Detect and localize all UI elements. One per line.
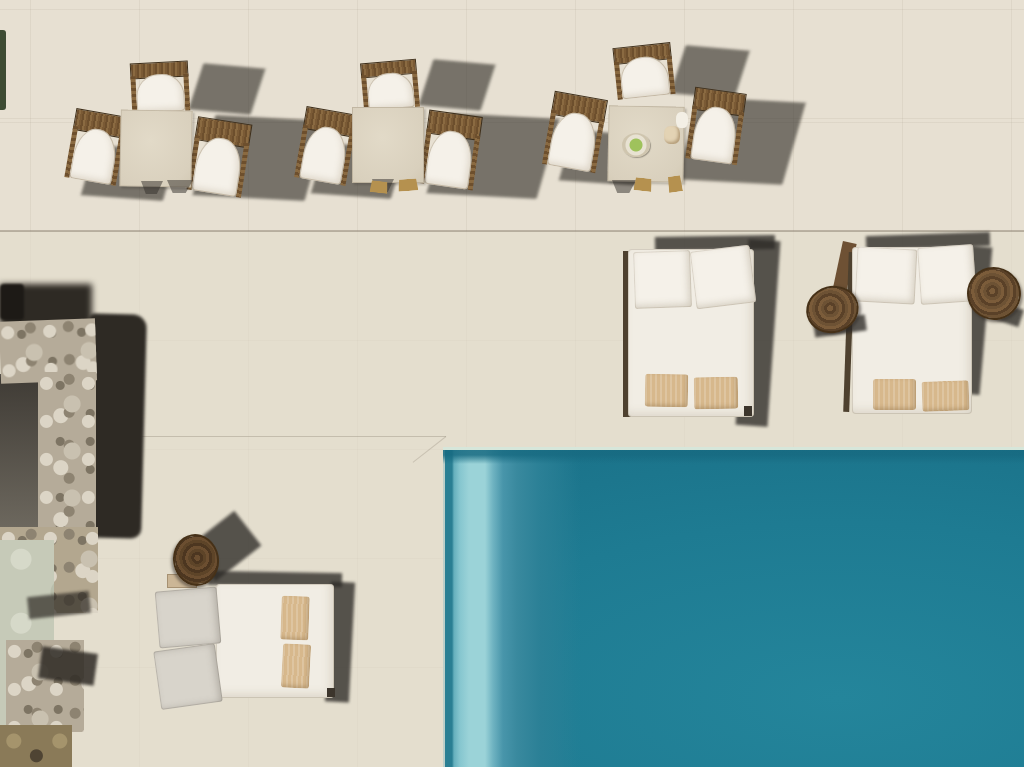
daybed-pillow	[645, 374, 689, 408]
vegetation-strip	[0, 30, 6, 110]
table-wood-foot	[633, 177, 652, 192]
swimming-pool	[443, 450, 1024, 767]
dining-chair	[130, 61, 191, 114]
dining-chair	[419, 110, 483, 191]
daybed-foot	[327, 688, 335, 697]
stone-wall-vertical-segment	[38, 372, 96, 540]
daybed-foot	[744, 406, 752, 416]
plate-with-food	[622, 133, 650, 157]
aerial-pool-terrace-photo	[0, 0, 1024, 767]
daybed-backrest-cushion	[155, 586, 222, 648]
table-wood-foot	[369, 180, 388, 194]
dining-chair	[360, 59, 420, 112]
daybed-pillow	[873, 379, 916, 410]
chair-cushion	[136, 73, 185, 113]
daybed-backrest-cushion	[855, 246, 918, 304]
dining-chair	[685, 87, 747, 166]
table-item-napkin	[664, 126, 680, 144]
daybed-backrest-cushion	[690, 245, 757, 310]
daybed-pillow	[281, 643, 311, 688]
pool-coping-lip	[443, 447, 1024, 450]
daybed-pillow	[921, 380, 969, 412]
brown-rocks-bottom	[0, 725, 72, 767]
table-item-dish	[676, 112, 688, 128]
daybed-mattress	[216, 584, 334, 698]
daybed-pillow	[694, 377, 739, 410]
daybed-pillow	[280, 596, 310, 641]
dining-chair	[612, 42, 675, 100]
dining-table	[352, 107, 424, 183]
dining-chair	[187, 116, 253, 198]
daybed-backrest-cushion	[633, 250, 692, 309]
dark-shrub	[0, 284, 24, 320]
dining-table	[119, 109, 192, 187]
daybed-backrest-cushion	[153, 643, 223, 710]
table-wood-foot	[398, 178, 419, 191]
paving-step-seam	[0, 230, 1024, 232]
